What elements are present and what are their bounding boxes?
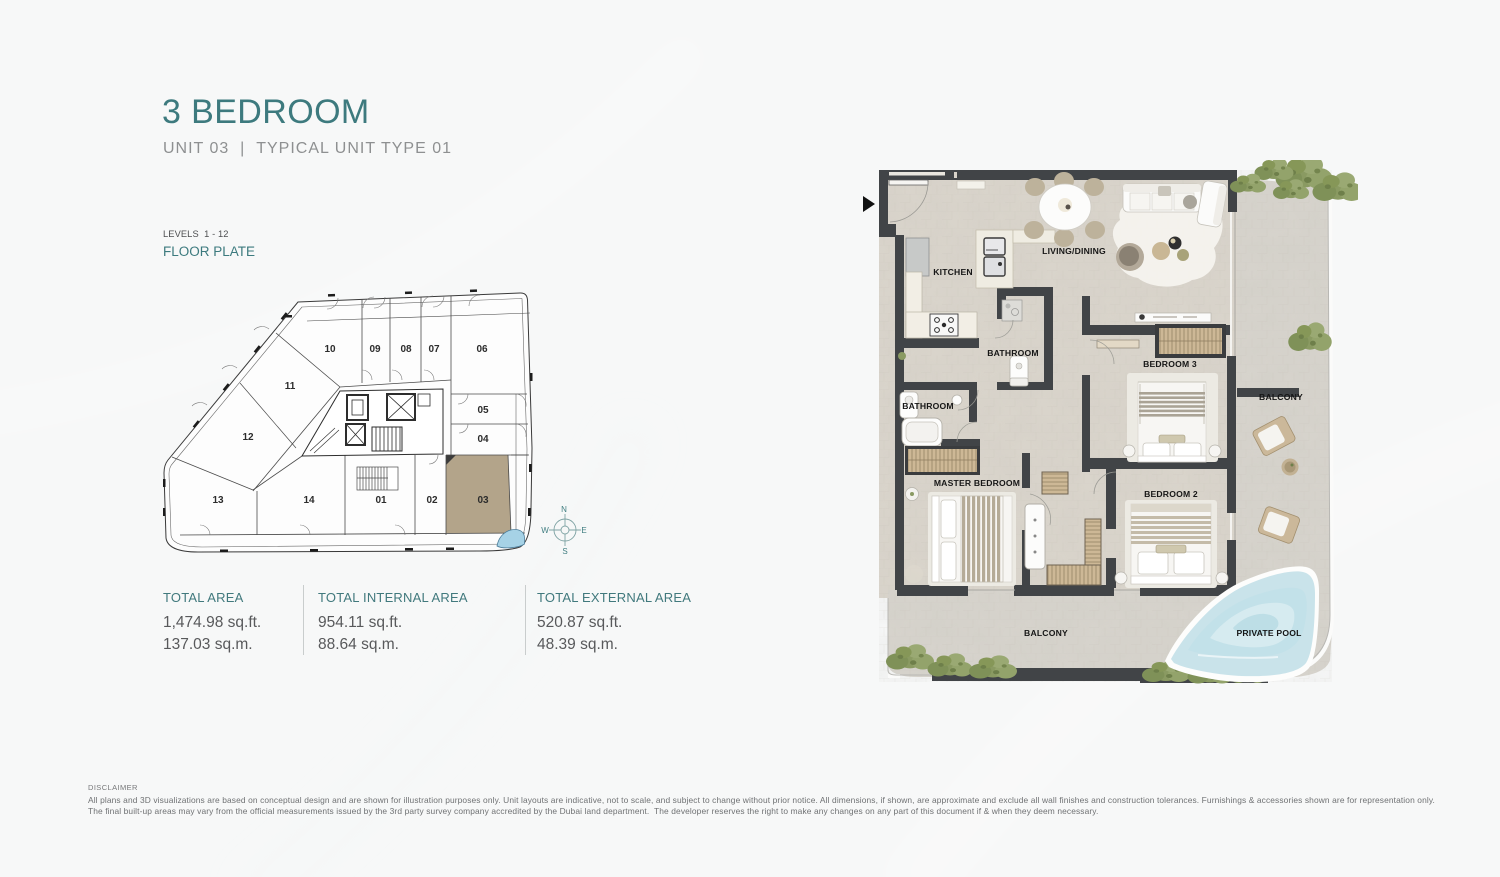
svg-text:BATHROOM: BATHROOM [987,348,1039,358]
svg-text:01: 01 [375,495,387,506]
svg-text:W: W [541,526,549,535]
svg-text:BALCONY: BALCONY [1259,392,1303,402]
svg-text:PRIVATE POOL: PRIVATE POOL [1236,628,1301,638]
svg-text:E: E [581,526,586,535]
svg-text:KITCHEN: KITCHEN [933,267,973,277]
svg-text:06: 06 [476,344,488,355]
svg-text:07: 07 [428,344,440,355]
svg-text:09: 09 [369,344,381,355]
svg-text:03: 03 [477,495,489,506]
svg-text:05: 05 [477,405,489,416]
svg-text:11: 11 [285,381,296,392]
svg-text:S: S [562,547,567,556]
svg-text:13: 13 [212,495,224,506]
svg-text:BALCONY: BALCONY [1024,628,1068,638]
svg-text:LIVING/DINING: LIVING/DINING [1042,246,1106,256]
svg-text:12: 12 [242,432,254,443]
svg-text:10: 10 [324,344,336,355]
svg-text:N: N [561,505,567,514]
svg-text:14: 14 [303,495,315,506]
svg-text:BEDROOM 2: BEDROOM 2 [1144,489,1198,499]
svg-text:08: 08 [400,344,412,355]
svg-text:04: 04 [477,434,489,445]
svg-text:02: 02 [426,495,438,506]
svg-text:MASTER BEDROOM: MASTER BEDROOM [934,478,1020,488]
svg-text:BEDROOM 3: BEDROOM 3 [1143,359,1197,369]
svg-text:BATHROOM: BATHROOM [902,401,954,411]
